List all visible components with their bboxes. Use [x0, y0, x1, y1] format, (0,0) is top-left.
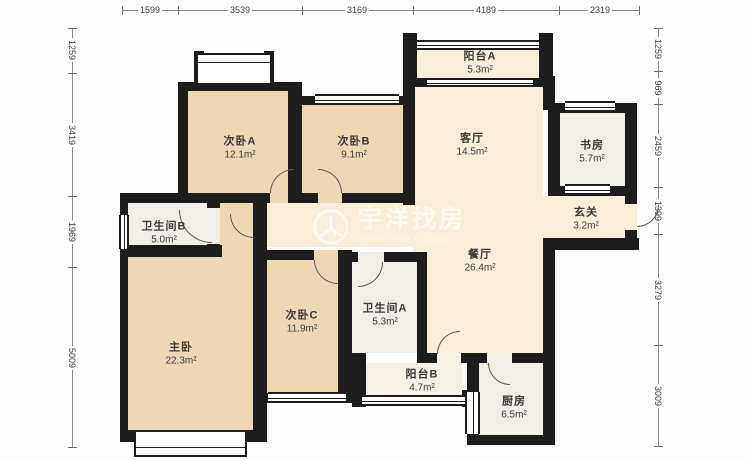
wall-segment: [338, 250, 352, 403]
dim-tick: [654, 104, 663, 105]
wall-segment: [543, 76, 555, 110]
wall-segment: [548, 103, 560, 196]
room-name: 餐厅: [464, 247, 495, 261]
room-label-living: 客厅 14.5m²: [456, 131, 487, 158]
dim-tick: [68, 267, 77, 268]
wall-segment: [253, 203, 267, 442]
wall-segment: [120, 193, 270, 203]
bay-window-master: [134, 430, 247, 457]
dim-label-top: 4189: [474, 5, 498, 15]
window: [119, 215, 129, 249]
room-label-bedroom-c: 次卧C 11.9m²: [286, 308, 319, 335]
dim-tick: [654, 28, 663, 29]
room-label-bath-b: 卫生间B 5.0m²: [142, 219, 187, 246]
room-name: 主卧: [165, 340, 196, 354]
dim-label-right: 3279: [653, 278, 663, 302]
wall-segment: [120, 250, 128, 442]
room-label-balcony-b: 阳台B 4.7m²: [406, 367, 439, 394]
dim-tick: [654, 234, 663, 235]
window: [315, 94, 399, 105]
dim-tick: [68, 447, 77, 448]
dim-label-left: 1259: [67, 38, 77, 62]
dim-label-top: 1599: [138, 5, 162, 15]
room-label-balcony-a: 阳台A 5.3m²: [464, 49, 497, 76]
dim-tick: [68, 73, 77, 74]
wall-segment: [403, 33, 417, 81]
wall-segment: [625, 103, 637, 196]
wall-segment: [245, 430, 267, 442]
wall-segment: [178, 82, 188, 203]
wall-segment: [267, 250, 314, 260]
window: [565, 101, 615, 112]
room-area: 5.7m²: [579, 153, 605, 166]
dim-label-top: 2319: [588, 5, 612, 15]
room-area: 3.2m²: [573, 220, 599, 233]
bay-window-bedroom-a: [196, 53, 272, 85]
dim-label-top: 3169: [345, 5, 369, 15]
room-name: 卫生间A: [363, 301, 408, 315]
wall-segment: [417, 252, 427, 363]
room-area: 5.3m²: [363, 316, 408, 329]
room-name: 厨房: [501, 394, 527, 408]
room-name: 玄关: [573, 205, 599, 219]
wall-segment: [342, 193, 413, 203]
room-area: 5.3m²: [464, 64, 497, 77]
room-label-bath-a: 卫生间A 5.3m²: [363, 301, 408, 328]
door-opening: [318, 193, 342, 203]
dim-line-top: [122, 10, 640, 11]
wall-segment: [543, 240, 555, 445]
room-name: 次卧C: [286, 308, 319, 322]
room-area: 11.9m²: [286, 323, 319, 336]
room-name: 阳台A: [464, 49, 497, 63]
room-label-dining: 餐厅 26.4m²: [464, 247, 495, 274]
room-floor-living-dining: [413, 84, 543, 353]
dim-label-left: 1969: [67, 220, 77, 244]
room-area: 14.5m²: [456, 146, 487, 159]
window: [465, 392, 480, 434]
dim-label-top: 3539: [228, 5, 252, 15]
dim-tick: [178, 6, 179, 15]
dim-label-right: 2459: [653, 134, 663, 158]
wall-segment: [294, 193, 318, 203]
door-opening: [314, 250, 338, 260]
wall-segment: [625, 230, 637, 250]
window-mullion: [198, 62, 270, 63]
dim-tick: [122, 6, 123, 15]
dim-label-left: 5009: [67, 346, 77, 370]
dim-tick: [413, 6, 414, 15]
dim-tick: [654, 345, 663, 346]
dim-tick: [654, 446, 663, 447]
wall-segment: [539, 33, 553, 81]
room-name: 书房: [579, 138, 605, 152]
window: [565, 184, 610, 195]
wall-segment: [417, 353, 437, 363]
room-name: 次卧A: [224, 134, 257, 148]
room-label-study: 书房 5.7m²: [579, 138, 605, 165]
dim-label-left: 3419: [67, 123, 77, 147]
wall-segment: [207, 193, 220, 208]
room-label-bedroom-b: 次卧B 9.1m²: [338, 134, 371, 161]
window-mullion: [136, 447, 245, 448]
wall-segment: [403, 76, 415, 205]
dim-label-right: 3009: [653, 384, 663, 408]
door-opening: [222, 245, 253, 257]
room-area: 12.1m²: [224, 149, 257, 162]
dim-tick: [302, 6, 303, 15]
dim-tick: [68, 28, 77, 29]
door-opening: [358, 252, 384, 262]
room-label-kitchen: 厨房 6.5m²: [501, 394, 527, 421]
room-area: 22.3m²: [165, 355, 196, 368]
wall-segment: [120, 245, 222, 257]
room-name: 客厅: [456, 131, 487, 145]
dim-tick: [68, 196, 77, 197]
room-area: 26.4m²: [464, 262, 495, 275]
dim-label-right: 969: [653, 78, 663, 97]
dim-label-right: 1259: [653, 37, 663, 61]
dim-tick: [559, 6, 560, 15]
room-name: 次卧B: [338, 134, 371, 148]
room-name: 阳台B: [406, 367, 439, 381]
room-name: 卫生间B: [142, 219, 187, 233]
room-label-bedroom-a: 次卧A 12.1m²: [224, 134, 257, 161]
wall-segment: [467, 435, 555, 445]
window: [362, 395, 466, 406]
floor-plan: 1599 3539 3169 4189 2319 1259 3419 1969 …: [0, 0, 750, 460]
wall-segment: [338, 252, 358, 262]
door-opening: [625, 204, 637, 230]
dim-tick: [654, 187, 663, 188]
room-area: 9.1m²: [338, 149, 371, 162]
room-area: 4.7m²: [406, 382, 439, 395]
room-label-foyer: 玄关 3.2m²: [573, 205, 599, 232]
door-arc-entry: [637, 205, 659, 227]
room-area: 6.5m²: [501, 409, 527, 422]
dim-tick: [639, 6, 640, 15]
window-slider: [427, 78, 533, 87]
door-opening: [487, 353, 512, 363]
room-area: 5.0m²: [142, 234, 187, 247]
dim-tick: [654, 71, 663, 72]
window: [268, 392, 346, 403]
room-label-master: 主卧 22.3m²: [165, 340, 196, 367]
door-opening: [437, 353, 461, 363]
